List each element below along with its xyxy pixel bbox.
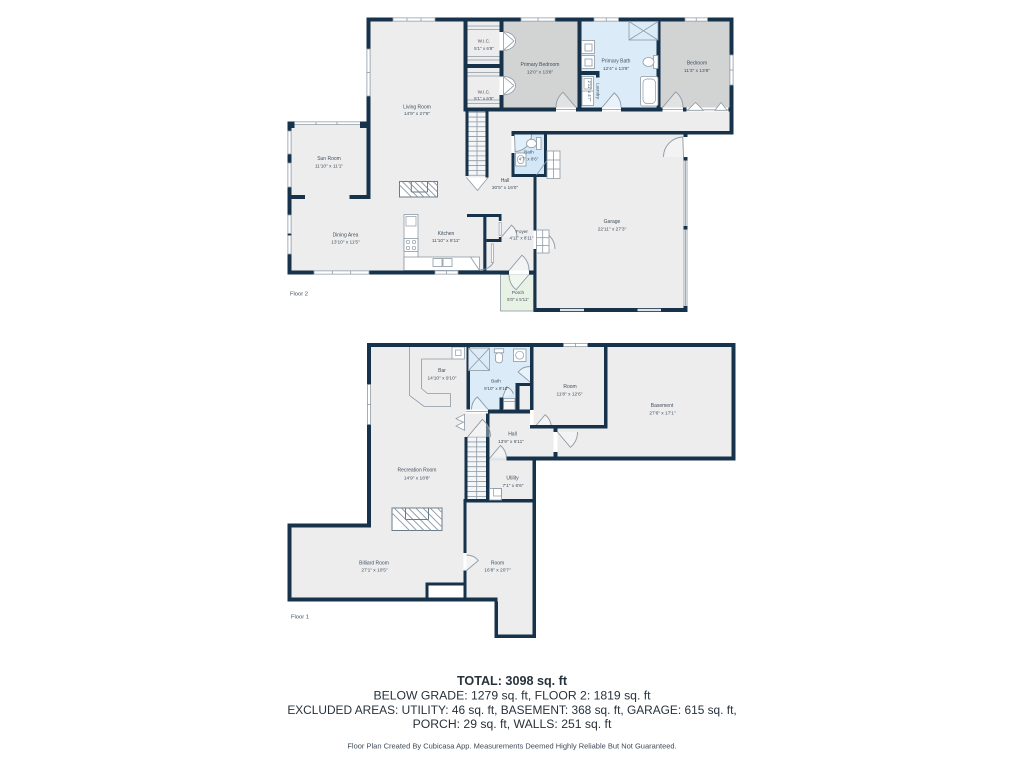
svg-text:14'9" x 27'6": 14'9" x 27'6" (404, 111, 431, 117)
svg-text:Living Room: Living Room (403, 104, 431, 110)
svg-text:11'3" x 13'8": 11'3" x 13'8" (684, 68, 710, 74)
svg-text:2'11" x 4'7": 2'11" x 4'7" (587, 81, 592, 102)
svg-text:Hall: Hall (508, 432, 517, 438)
svg-text:27'1" x 10'5": 27'1" x 10'5" (361, 568, 388, 574)
svg-text:BELOW GRADE: 1279 sq. ft, FLOO: BELOW GRADE: 1279 sq. ft, FLOOR 2: 1819 … (373, 689, 651, 703)
svg-text:Primary Bath: Primary Bath (602, 59, 631, 65)
svg-text:Dining Area: Dining Area (333, 233, 359, 239)
svg-text:14'10" x 9'10": 14'10" x 9'10" (428, 376, 457, 382)
svg-text:11'10" x 8'11": 11'10" x 8'11" (432, 238, 461, 244)
svg-text:Floor 2: Floor 2 (290, 292, 308, 298)
svg-text:Kitchen: Kitchen (438, 231, 455, 237)
svg-text:5'0" x 5'11": 5'0" x 5'11" (507, 297, 529, 302)
svg-text:16'8" x 20'7": 16'8" x 20'7" (484, 568, 511, 574)
svg-text:Laundry: Laundry (596, 83, 601, 100)
svg-text:12'4" x 13'8": 12'4" x 13'8" (603, 66, 630, 72)
svg-text:Recreation Room: Recreation Room (398, 468, 437, 474)
svg-text:Bedroom: Bedroom (687, 61, 707, 67)
svg-text:Primary Bedroom: Primary Bedroom (521, 62, 560, 68)
svg-text:W.I.C.: W.I.C. (478, 39, 491, 44)
svg-text:Hall: Hall (501, 178, 510, 184)
svg-text:7'1" x 6'6": 7'1" x 6'6" (503, 483, 524, 489)
svg-text:Bath: Bath (524, 150, 534, 155)
svg-text:Utility: Utility (506, 476, 519, 482)
svg-text:Bath: Bath (491, 379, 501, 384)
svg-text:9'10" x 9'10": 9'10" x 9'10" (484, 386, 509, 391)
svg-text:5'1" x 6'9": 5'1" x 6'9" (474, 96, 494, 101)
svg-text:Basement: Basement (651, 403, 674, 409)
svg-text:W.I.C.: W.I.C. (478, 90, 491, 95)
svg-text:30'5" x 16'0": 30'5" x 16'0" (492, 185, 519, 191)
svg-text:Room: Room (563, 384, 576, 390)
svg-text:11'10" x 11'1": 11'10" x 11'1" (315, 164, 344, 170)
svg-text:Porch: Porch (512, 290, 525, 295)
svg-text:Billiard Room: Billiard Room (359, 561, 389, 567)
svg-text:Garage: Garage (604, 219, 621, 225)
svg-text:Foyer: Foyer (516, 229, 528, 234)
svg-text:Bar: Bar (438, 368, 446, 374)
svg-text:Floor Plan Created By Cubicasa: Floor Plan Created By Cubicasa App. Meas… (347, 741, 676, 750)
svg-text:11'8" x 12'6": 11'8" x 12'6" (557, 392, 583, 398)
svg-text:22'11" x 27'3": 22'11" x 27'3" (598, 227, 627, 233)
svg-text:14'9" x 18'8": 14'9" x 18'8" (404, 476, 431, 482)
svg-text:4'7" x 8'6": 4'7" x 8'6" (519, 157, 539, 162)
svg-text:13'9" x 6'11": 13'9" x 6'11" (498, 439, 524, 445)
svg-text:27'6" x 17'1": 27'6" x 17'1" (649, 411, 676, 417)
svg-text:TOTAL: 3098 sq. ft: TOTAL: 3098 sq. ft (457, 674, 568, 688)
svg-text:12'0" x 13'8": 12'0" x 13'8" (527, 70, 554, 76)
svg-text:13'10" x 11'5": 13'10" x 11'5" (331, 240, 360, 246)
svg-text:Room: Room (491, 561, 504, 567)
svg-text:5'1" x 6'8": 5'1" x 6'8" (474, 46, 494, 51)
svg-text:PORCH: 29 sq. ft, WALLS: 251 s: PORCH: 29 sq. ft, WALLS: 251 sq. ft (413, 717, 612, 731)
svg-text:EXCLUDED AREAS: UTILITY: 46 sq: EXCLUDED AREAS: UTILITY: 46 sq. ft, BASE… (287, 703, 736, 717)
svg-text:4'11" x 8'11": 4'11" x 8'11" (509, 235, 533, 240)
svg-text:Floor 1: Floor 1 (291, 615, 309, 621)
svg-text:Sun Room: Sun Room (317, 156, 341, 162)
